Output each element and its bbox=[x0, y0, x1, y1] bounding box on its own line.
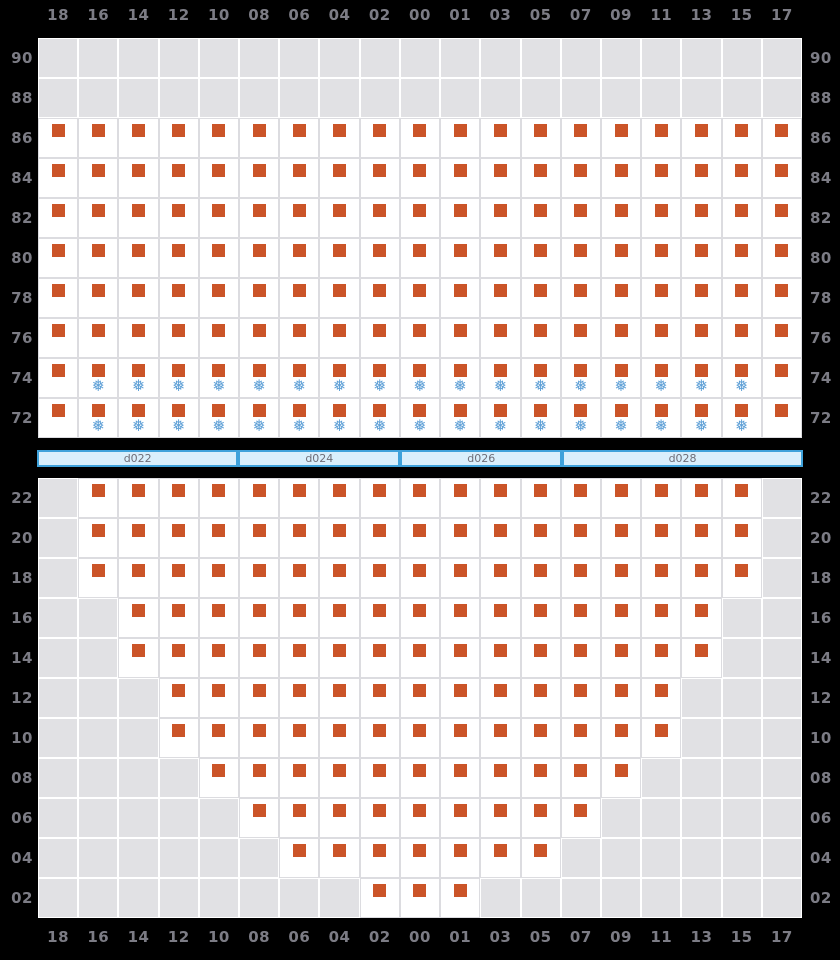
grid-cell bbox=[38, 798, 78, 838]
x-tick-label: 05 bbox=[521, 2, 561, 28]
grid-cell bbox=[38, 398, 78, 438]
grid-cell bbox=[78, 478, 118, 518]
snowflake-icon: ❅ bbox=[252, 417, 265, 434]
x-tick-label: 15 bbox=[722, 2, 762, 28]
x-tick-label: 17 bbox=[762, 922, 802, 952]
grid-cell bbox=[521, 198, 561, 238]
square-marker-icon bbox=[615, 644, 628, 657]
square-marker-icon bbox=[775, 364, 788, 377]
square-marker-icon bbox=[574, 164, 587, 177]
square-marker-icon bbox=[333, 804, 346, 817]
grid-cell bbox=[118, 318, 158, 358]
square-marker-icon bbox=[534, 604, 547, 617]
grid-cell: ❅ bbox=[78, 398, 118, 438]
square-marker-icon bbox=[52, 284, 65, 297]
square-marker-icon bbox=[132, 524, 145, 537]
grid-cell bbox=[319, 38, 359, 78]
grid-cell bbox=[641, 238, 681, 278]
grid-cell bbox=[641, 118, 681, 158]
square-marker-icon bbox=[655, 564, 668, 577]
snowflake-icon: ❅ bbox=[614, 417, 627, 434]
y-tick-label: 84 bbox=[0, 158, 38, 198]
grid-cell bbox=[561, 118, 601, 158]
square-marker-icon bbox=[574, 124, 587, 137]
grid-cell bbox=[118, 638, 158, 678]
grid-cell bbox=[38, 38, 78, 78]
y-tick-label: 80 bbox=[802, 238, 840, 278]
grid-cell bbox=[159, 718, 199, 758]
square-marker-icon bbox=[454, 844, 467, 857]
grid-cell bbox=[601, 318, 641, 358]
square-marker-icon bbox=[454, 244, 467, 257]
grid-cell bbox=[521, 478, 561, 518]
grid-cell bbox=[641, 318, 681, 358]
snowflake-icon: ❅ bbox=[373, 377, 386, 394]
grid-cell bbox=[601, 278, 641, 318]
grid-cell bbox=[440, 78, 480, 118]
y-tick-label: 16 bbox=[802, 598, 840, 638]
grid-cell bbox=[561, 318, 601, 358]
y-tick-label: 18 bbox=[802, 558, 840, 598]
square-marker-icon bbox=[212, 724, 225, 737]
grid-cell bbox=[279, 478, 319, 518]
grid-cell bbox=[762, 398, 802, 438]
grid-cell bbox=[239, 558, 279, 598]
square-marker-icon bbox=[132, 164, 145, 177]
grid-cell: ❅ bbox=[521, 358, 561, 398]
square-marker-icon bbox=[333, 604, 346, 617]
y-tick-label: 78 bbox=[0, 278, 38, 318]
grid-cell bbox=[38, 838, 78, 878]
grid-cell bbox=[480, 558, 520, 598]
square-marker-icon bbox=[454, 204, 467, 217]
square-marker-icon bbox=[494, 484, 507, 497]
square-marker-icon bbox=[212, 484, 225, 497]
grid-cell bbox=[118, 118, 158, 158]
square-marker-icon bbox=[454, 684, 467, 697]
grid-cell bbox=[762, 518, 802, 558]
square-marker-icon bbox=[253, 324, 266, 337]
square-marker-icon bbox=[333, 564, 346, 577]
square-marker-icon bbox=[212, 564, 225, 577]
grid-cell bbox=[722, 158, 762, 198]
grid-cell bbox=[762, 798, 802, 838]
grid-cell bbox=[38, 558, 78, 598]
square-marker-icon bbox=[293, 644, 306, 657]
grid-cell bbox=[561, 758, 601, 798]
square-marker-icon bbox=[615, 684, 628, 697]
grid-cell bbox=[118, 718, 158, 758]
square-marker-icon bbox=[775, 244, 788, 257]
grid-cell bbox=[521, 598, 561, 638]
square-marker-icon bbox=[253, 204, 266, 217]
square-marker-icon bbox=[534, 764, 547, 777]
grid-cell bbox=[762, 358, 802, 398]
x-tick-label: 09 bbox=[601, 922, 641, 952]
grid-cell bbox=[400, 118, 440, 158]
square-marker-icon bbox=[253, 284, 266, 297]
square-marker-icon bbox=[52, 324, 65, 337]
grid-cell bbox=[440, 238, 480, 278]
day-segment[interactable]: d026 bbox=[400, 450, 562, 467]
grid-cell bbox=[78, 598, 118, 638]
square-marker-icon bbox=[413, 524, 426, 537]
square-marker-icon bbox=[293, 324, 306, 337]
grid-cell bbox=[118, 598, 158, 638]
square-marker-icon bbox=[52, 124, 65, 137]
square-marker-icon bbox=[695, 484, 708, 497]
square-marker-icon bbox=[494, 684, 507, 697]
square-marker-icon bbox=[172, 644, 185, 657]
grid-cell bbox=[38, 598, 78, 638]
grid-cell bbox=[440, 838, 480, 878]
top-grid-panel: ❅❅❅❅❅❅❅❅❅❅❅❅❅❅❅❅❅❅❅❅❅❅❅❅❅❅❅❅❅❅❅❅❅❅ bbox=[38, 38, 802, 438]
grid-cell bbox=[440, 558, 480, 598]
grid-cell bbox=[118, 478, 158, 518]
grid-cell bbox=[400, 878, 440, 918]
grid-cell: ❅ bbox=[319, 398, 359, 438]
grid-cell bbox=[762, 78, 802, 118]
grid-cell bbox=[641, 718, 681, 758]
grid-cell bbox=[239, 598, 279, 638]
grid-cell bbox=[199, 718, 239, 758]
square-marker-icon bbox=[172, 164, 185, 177]
grid-cell bbox=[279, 78, 319, 118]
grid-cell bbox=[279, 638, 319, 678]
square-marker-icon bbox=[534, 324, 547, 337]
grid-cell bbox=[762, 238, 802, 278]
y-axis-top-left: 90888684828078767472 bbox=[0, 38, 38, 438]
square-marker-icon bbox=[775, 204, 788, 217]
grid-cell bbox=[360, 598, 400, 638]
grid-cell: ❅ bbox=[279, 398, 319, 438]
square-marker-icon bbox=[413, 124, 426, 137]
square-marker-icon bbox=[534, 244, 547, 257]
grid-cell bbox=[440, 478, 480, 518]
square-marker-icon bbox=[454, 764, 467, 777]
grid-cell bbox=[601, 478, 641, 518]
grid-cell bbox=[400, 278, 440, 318]
grid-cell bbox=[360, 278, 400, 318]
grid-cell bbox=[38, 518, 78, 558]
grid-cell bbox=[601, 78, 641, 118]
grid-cell bbox=[118, 518, 158, 558]
grid-cell: ❅ bbox=[440, 398, 480, 438]
y-axis-bottom-left: 2220181614121008060402 bbox=[0, 478, 38, 918]
grid-cell bbox=[319, 678, 359, 718]
grid-cell bbox=[561, 638, 601, 678]
grid-cell bbox=[199, 518, 239, 558]
grid-cell bbox=[601, 678, 641, 718]
square-marker-icon bbox=[655, 124, 668, 137]
square-marker-icon bbox=[494, 164, 507, 177]
square-marker-icon bbox=[212, 644, 225, 657]
y-tick-label: 78 bbox=[802, 278, 840, 318]
y-axis-top-right: 90888684828078767472 bbox=[802, 38, 840, 438]
square-marker-icon bbox=[494, 604, 507, 617]
grid-cell bbox=[279, 118, 319, 158]
grid-cell bbox=[722, 558, 762, 598]
grid-cell bbox=[601, 598, 641, 638]
snowflake-icon: ❅ bbox=[454, 377, 467, 394]
square-marker-icon bbox=[413, 804, 426, 817]
grid-cell bbox=[279, 318, 319, 358]
grid-cell bbox=[681, 878, 721, 918]
grid-cell bbox=[118, 758, 158, 798]
y-tick-label: 72 bbox=[0, 398, 38, 438]
square-marker-icon bbox=[293, 724, 306, 737]
y-tick-label: 74 bbox=[802, 358, 840, 398]
square-marker-icon bbox=[574, 804, 587, 817]
x-tick-label: 06 bbox=[279, 2, 319, 28]
day-segment-label: d026 bbox=[467, 453, 495, 464]
grid-cell bbox=[641, 678, 681, 718]
square-marker-icon bbox=[454, 644, 467, 657]
square-marker-icon bbox=[212, 764, 225, 777]
grid-cell bbox=[360, 838, 400, 878]
y-tick-label: 76 bbox=[0, 318, 38, 358]
grid-cell bbox=[38, 318, 78, 358]
grid-cell bbox=[38, 478, 78, 518]
grid-cell bbox=[561, 78, 601, 118]
grid-cell bbox=[521, 118, 561, 158]
grid-cell bbox=[521, 38, 561, 78]
grid-cell bbox=[762, 198, 802, 238]
grid-cell bbox=[440, 38, 480, 78]
snowflake-icon: ❅ bbox=[494, 417, 507, 434]
grid-cell bbox=[38, 278, 78, 318]
grid-cell bbox=[681, 638, 721, 678]
day-segment-label: d024 bbox=[305, 453, 333, 464]
square-marker-icon bbox=[574, 724, 587, 737]
grid-cell bbox=[319, 318, 359, 358]
x-tick-label: 18 bbox=[38, 922, 78, 952]
square-marker-icon bbox=[615, 604, 628, 617]
square-marker-icon bbox=[132, 124, 145, 137]
square-marker-icon bbox=[253, 484, 266, 497]
square-marker-icon bbox=[775, 164, 788, 177]
snowflake-icon: ❅ bbox=[695, 417, 708, 434]
grid-cell bbox=[440, 158, 480, 198]
square-marker-icon bbox=[52, 404, 65, 417]
y-tick-label: 20 bbox=[802, 518, 840, 558]
grid-cell bbox=[722, 38, 762, 78]
grid-cell bbox=[400, 718, 440, 758]
grid-cell bbox=[319, 758, 359, 798]
y-tick-label: 90 bbox=[802, 38, 840, 78]
grid-cell bbox=[722, 798, 762, 838]
snowflake-icon: ❅ bbox=[92, 377, 105, 394]
square-marker-icon bbox=[413, 604, 426, 617]
square-marker-icon bbox=[775, 124, 788, 137]
y-tick-label: 10 bbox=[802, 718, 840, 758]
square-marker-icon bbox=[494, 284, 507, 297]
grid-cell bbox=[762, 318, 802, 358]
square-marker-icon bbox=[293, 684, 306, 697]
square-marker-icon bbox=[212, 524, 225, 537]
square-marker-icon bbox=[212, 204, 225, 217]
x-tick-label: 02 bbox=[360, 922, 400, 952]
grid-cell bbox=[521, 838, 561, 878]
grid-cell bbox=[78, 158, 118, 198]
grid-cell bbox=[279, 718, 319, 758]
grid-cell bbox=[440, 598, 480, 638]
snowflake-icon: ❅ bbox=[574, 417, 587, 434]
grid-cell bbox=[762, 558, 802, 598]
square-marker-icon bbox=[293, 164, 306, 177]
grid-cell bbox=[561, 278, 601, 318]
grid-cell bbox=[722, 678, 762, 718]
grid-cell bbox=[360, 758, 400, 798]
grid-cell bbox=[400, 758, 440, 798]
square-marker-icon bbox=[655, 684, 668, 697]
x-tick-label: 17 bbox=[762, 2, 802, 28]
grid-cell bbox=[38, 118, 78, 158]
grid-cell bbox=[239, 638, 279, 678]
grid-cell bbox=[601, 718, 641, 758]
square-marker-icon bbox=[172, 124, 185, 137]
grid-cell bbox=[199, 638, 239, 678]
grid-cell bbox=[480, 518, 520, 558]
grid-cell bbox=[118, 38, 158, 78]
grid-cell bbox=[681, 198, 721, 238]
square-marker-icon bbox=[655, 604, 668, 617]
square-marker-icon bbox=[695, 644, 708, 657]
grid-cell bbox=[118, 558, 158, 598]
square-marker-icon bbox=[293, 484, 306, 497]
grid-cell bbox=[722, 278, 762, 318]
grid-cell bbox=[480, 38, 520, 78]
grid-cell bbox=[118, 198, 158, 238]
grid-cell bbox=[78, 878, 118, 918]
square-marker-icon bbox=[494, 564, 507, 577]
grid-cell bbox=[681, 838, 721, 878]
snowflake-icon: ❅ bbox=[172, 377, 185, 394]
day-segment[interactable]: d024 bbox=[238, 450, 400, 467]
x-tick-label: 16 bbox=[78, 2, 118, 28]
square-marker-icon bbox=[253, 524, 266, 537]
x-tick-label: 07 bbox=[561, 2, 601, 28]
grid-cell bbox=[681, 118, 721, 158]
square-marker-icon bbox=[373, 244, 386, 257]
grid-cell bbox=[78, 758, 118, 798]
square-marker-icon bbox=[172, 324, 185, 337]
grid-cell bbox=[400, 38, 440, 78]
square-marker-icon bbox=[413, 284, 426, 297]
grid-cell bbox=[480, 318, 520, 358]
day-segment[interactable]: d028 bbox=[562, 450, 803, 467]
y-tick-label: 22 bbox=[802, 478, 840, 518]
x-tick-label: 01 bbox=[440, 922, 480, 952]
grid-cell bbox=[601, 798, 641, 838]
grid-cell bbox=[360, 78, 400, 118]
grid-cell bbox=[440, 758, 480, 798]
grid-cell bbox=[239, 158, 279, 198]
grid-cell: ❅ bbox=[681, 398, 721, 438]
grid-cell bbox=[521, 318, 561, 358]
y-tick-label: 82 bbox=[0, 198, 38, 238]
grid-cell: ❅ bbox=[319, 358, 359, 398]
grid-cell bbox=[521, 638, 561, 678]
square-marker-icon bbox=[132, 204, 145, 217]
snowflake-icon: ❅ bbox=[212, 377, 225, 394]
square-marker-icon bbox=[212, 284, 225, 297]
grid-cell bbox=[239, 838, 279, 878]
x-tick-label: 12 bbox=[159, 922, 199, 952]
grid-cell: ❅ bbox=[239, 398, 279, 438]
grid-cell bbox=[360, 198, 400, 238]
grid-cell bbox=[78, 678, 118, 718]
grid-cell bbox=[641, 838, 681, 878]
grid-cell bbox=[360, 518, 400, 558]
grid-cell bbox=[38, 718, 78, 758]
grid-cell bbox=[681, 518, 721, 558]
grid-cell bbox=[601, 198, 641, 238]
grid-cell bbox=[681, 718, 721, 758]
grid-cell bbox=[159, 798, 199, 838]
grid-cell bbox=[38, 198, 78, 238]
grid-cell bbox=[400, 598, 440, 638]
grid-cell bbox=[601, 558, 641, 598]
square-marker-icon bbox=[212, 604, 225, 617]
grid-cell bbox=[601, 518, 641, 558]
square-marker-icon bbox=[333, 164, 346, 177]
x-tick-label: 05 bbox=[521, 922, 561, 952]
square-marker-icon bbox=[212, 324, 225, 337]
square-marker-icon bbox=[373, 724, 386, 737]
grid-cell bbox=[480, 718, 520, 758]
square-marker-icon bbox=[695, 284, 708, 297]
square-marker-icon bbox=[534, 844, 547, 857]
square-marker-icon bbox=[454, 884, 467, 897]
square-marker-icon bbox=[454, 484, 467, 497]
grid-cell bbox=[400, 638, 440, 678]
grid-cell bbox=[159, 198, 199, 238]
grid-cell bbox=[561, 198, 601, 238]
grid-cell bbox=[118, 158, 158, 198]
square-marker-icon bbox=[615, 724, 628, 737]
square-marker-icon bbox=[132, 324, 145, 337]
square-marker-icon bbox=[413, 324, 426, 337]
grid-cell bbox=[400, 318, 440, 358]
square-marker-icon bbox=[52, 244, 65, 257]
grid-cell bbox=[159, 38, 199, 78]
grid-cell bbox=[199, 318, 239, 358]
x-tick-label: 03 bbox=[480, 922, 520, 952]
y-tick-label: 04 bbox=[802, 838, 840, 878]
square-marker-icon bbox=[735, 484, 748, 497]
day-segment[interactable]: d022 bbox=[37, 450, 238, 467]
y-tick-label: 88 bbox=[0, 78, 38, 118]
grid-cell bbox=[440, 798, 480, 838]
observation-chart: 18161412100806040200010305070911131517 9… bbox=[0, 0, 840, 960]
square-marker-icon bbox=[494, 244, 507, 257]
square-marker-icon bbox=[293, 844, 306, 857]
grid-cell bbox=[118, 78, 158, 118]
grid-cell bbox=[480, 118, 520, 158]
grid-cell bbox=[480, 478, 520, 518]
grid-cell bbox=[561, 838, 601, 878]
grid-cell bbox=[400, 158, 440, 198]
grid-cell bbox=[199, 678, 239, 718]
square-marker-icon bbox=[293, 564, 306, 577]
grid-cell bbox=[159, 238, 199, 278]
square-marker-icon bbox=[615, 124, 628, 137]
grid-cell bbox=[681, 38, 721, 78]
grid-cell bbox=[279, 158, 319, 198]
grid-cell bbox=[360, 318, 400, 358]
square-marker-icon bbox=[413, 484, 426, 497]
